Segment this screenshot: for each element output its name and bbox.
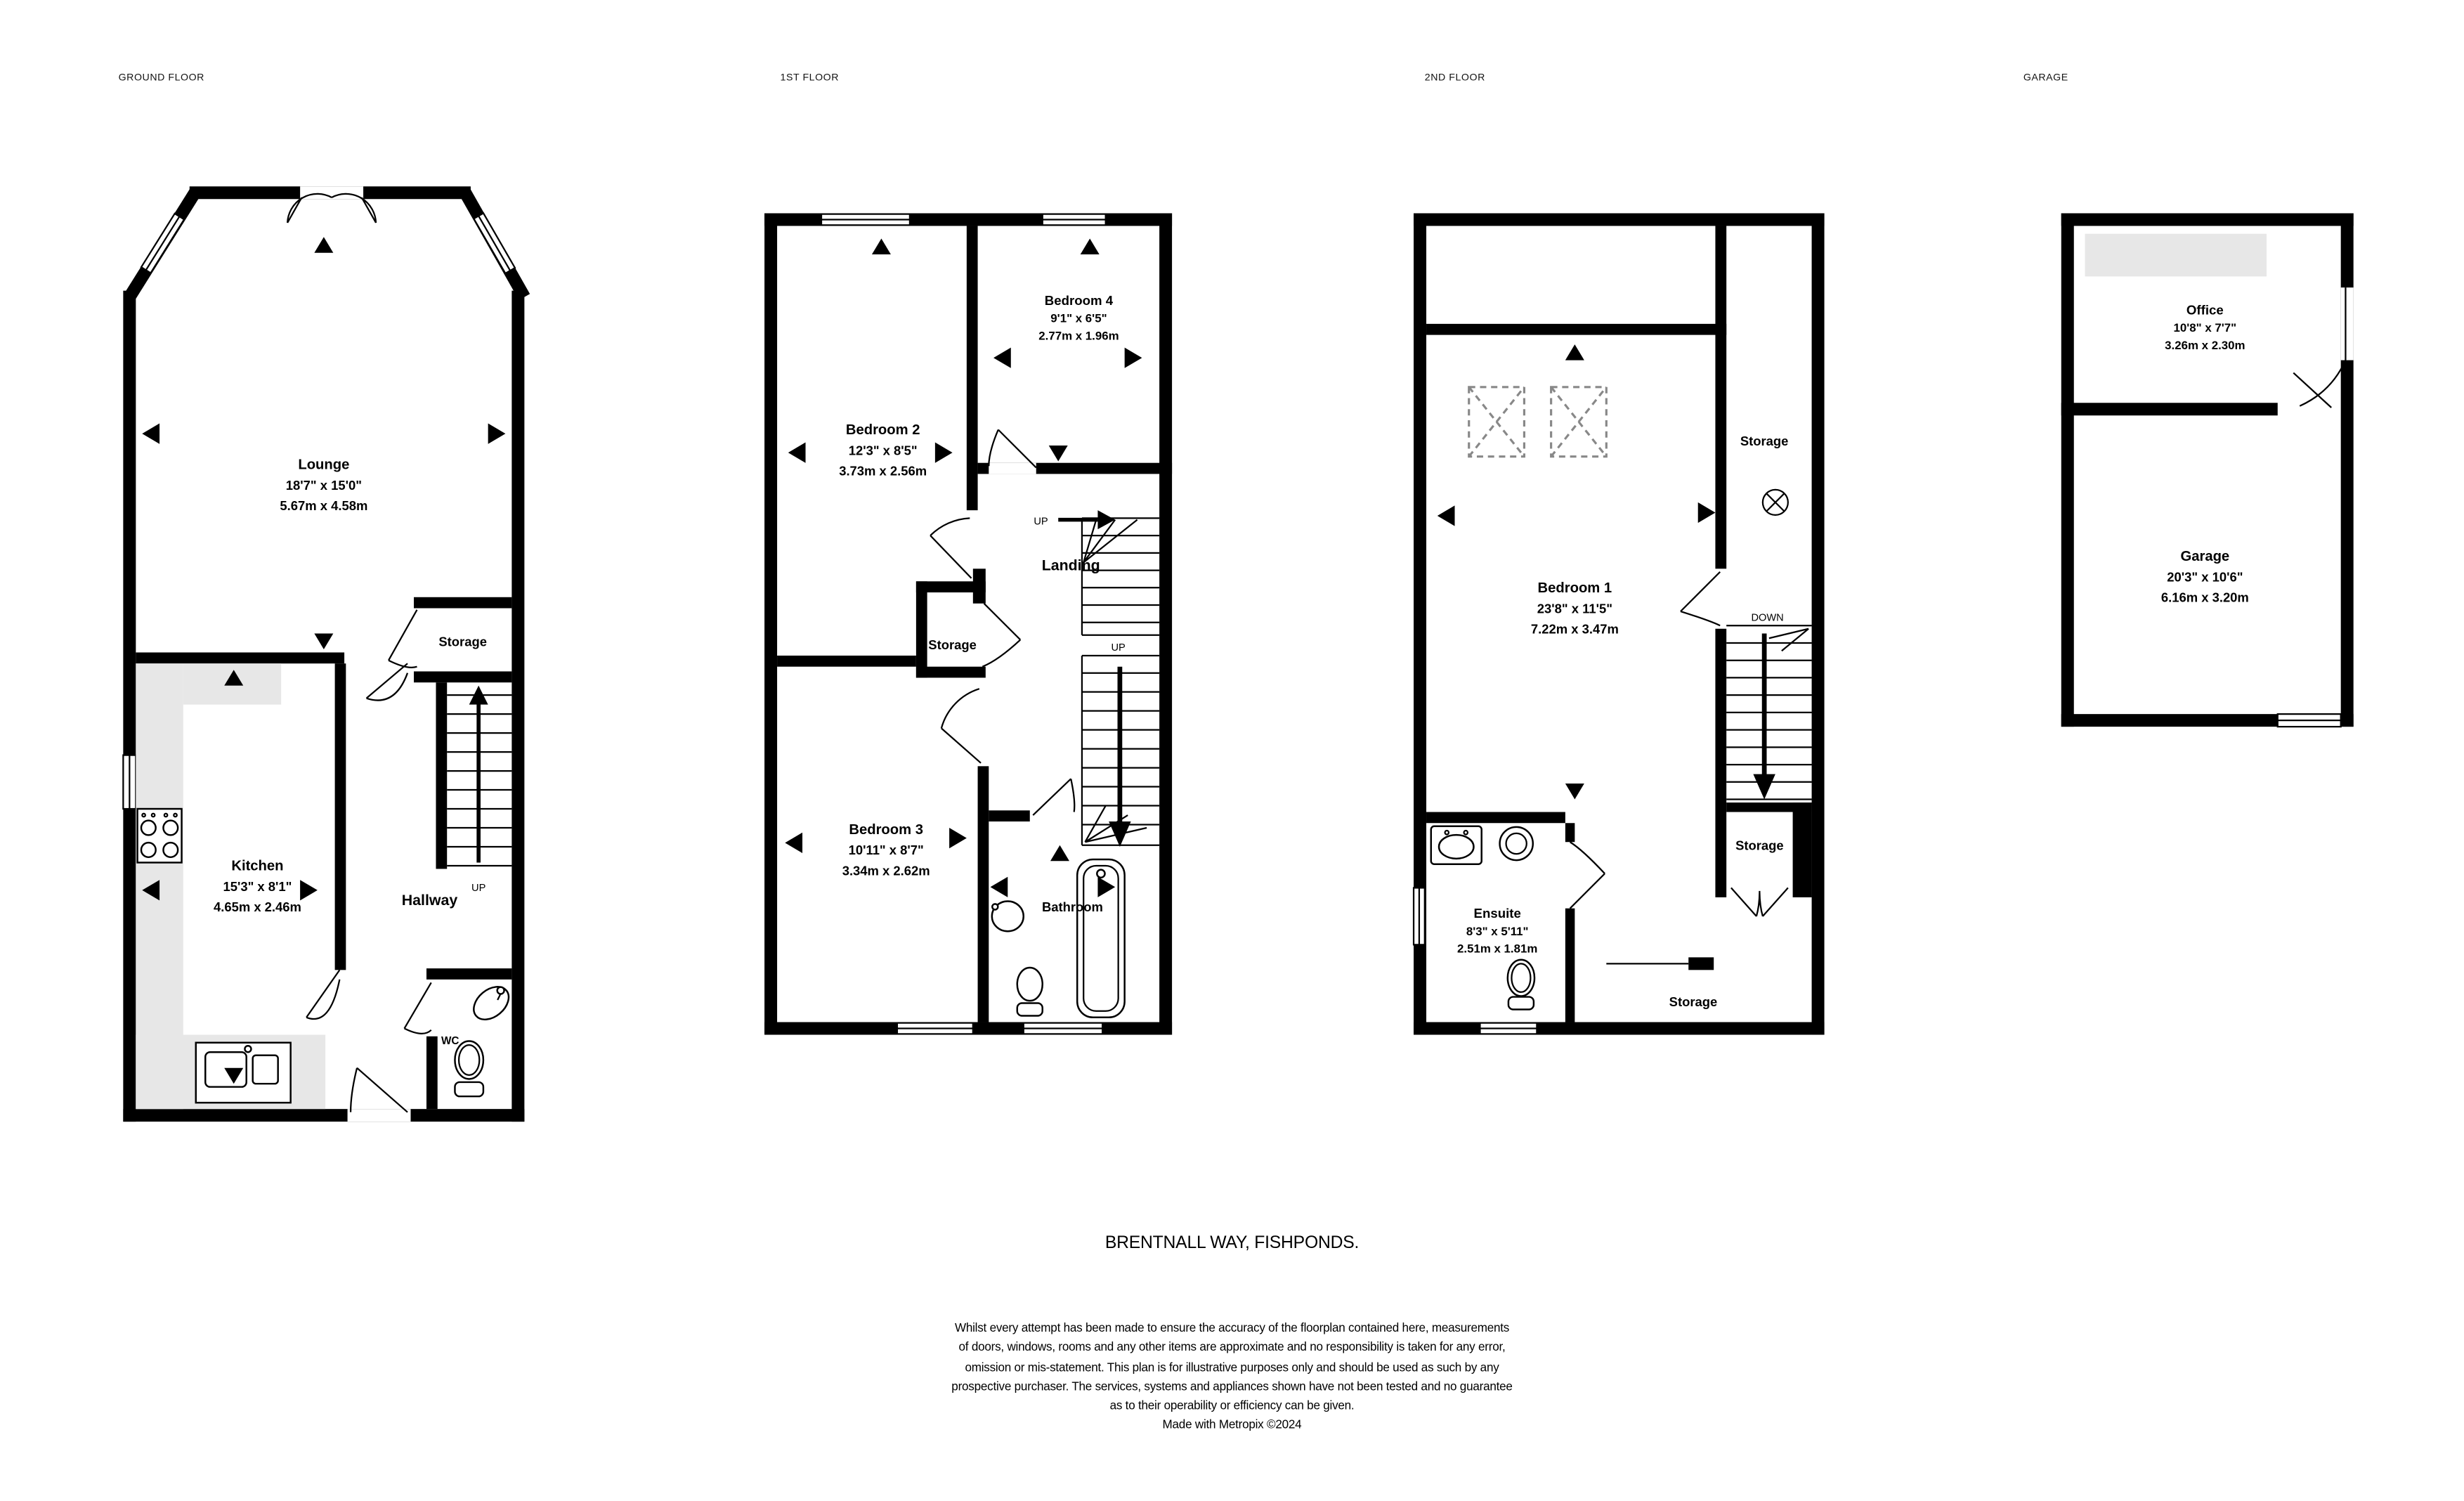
ground-floor-plan: Lounge 18'7" x 15'0" 5.67m x 4.58m Kitch…	[110, 171, 545, 1138]
ensuite-basin-icon	[1431, 826, 1482, 864]
svg-text:10'8" x 7'7": 10'8" x 7'7"	[2174, 321, 2237, 334]
landing-label: Landing	[1042, 557, 1100, 574]
ground-walls	[123, 186, 524, 1122]
second-floor-plan: Bedroom 1 23'8" x 11'5" 7.22m x 3.47m En…	[1406, 205, 1840, 1051]
down-label: DOWN	[1751, 613, 1783, 624]
arrow-up-icon	[872, 238, 891, 254]
svg-text:Kitchen: Kitchen	[231, 859, 283, 874]
arrow-right-icon	[935, 442, 953, 462]
svg-text:20'3" x 10'6": 20'3" x 10'6"	[2167, 569, 2243, 584]
bedroom1-label: Bedroom 1 23'8" x 11'5" 7.22m x 3.47m	[1531, 580, 1619, 636]
lounge-label: Lounge 18'7" x 15'0" 5.67m x 4.58m	[280, 457, 367, 513]
arrow-up-icon	[1081, 238, 1100, 254]
arrow-up-icon	[1050, 845, 1069, 861]
arrow-left-icon	[788, 442, 806, 462]
arrow-up-icon	[314, 237, 333, 252]
svg-text:3.26m x 2.30m: 3.26m x 2.30m	[2165, 339, 2245, 352]
arrow-left-icon	[142, 423, 159, 443]
arrow-right-icon	[1125, 348, 1142, 368]
office-label: Office 10'8" x 7'7" 3.26m x 2.30m	[2165, 302, 2245, 351]
arrow-left-icon	[993, 348, 1011, 368]
garage-title: GARAGE	[2023, 72, 2068, 84]
basin-icon	[992, 902, 1024, 932]
ground-up-label: UP	[471, 883, 485, 894]
svg-text:Office: Office	[2186, 302, 2224, 317]
arrow-right-icon	[1698, 502, 1716, 523]
ground-stairs-icon	[447, 686, 511, 866]
svg-text:Bedroom 2: Bedroom 2	[846, 422, 920, 438]
wc-label: WC	[441, 1035, 459, 1047]
garage-label: Garage 20'3" x 10'6" 6.16m x 3.20m	[2161, 549, 2249, 604]
arrow-right-icon	[488, 423, 506, 443]
svg-text:5.67m x 4.58m: 5.67m x 4.58m	[280, 498, 367, 513]
metropix-credit: Made with Metropix ©2024	[0, 1416, 2464, 1436]
second-stairs-icon	[1726, 625, 1811, 799]
hob-icon	[138, 809, 182, 862]
svg-text:Ensuite: Ensuite	[1474, 906, 1521, 921]
bedroom3-label: Bedroom 3 10'11" x 8'7" 3.34m x 2.62m	[842, 822, 930, 878]
svg-text:15'3" x 8'1": 15'3" x 8'1"	[223, 879, 292, 894]
disclaimer-line: omission or mis-statement. This plan is …	[0, 1358, 2464, 1377]
svg-text:7.22m x 3.47m: 7.22m x 3.47m	[1531, 621, 1619, 636]
second-storage-top-label: Storage	[1740, 434, 1789, 448]
svg-text:Garage: Garage	[2181, 549, 2230, 564]
arrow-left-icon	[785, 833, 802, 853]
disclaimer-line: prospective purchaser. The services, sys…	[0, 1377, 2464, 1397]
svg-text:2.51m x 1.81m: 2.51m x 1.81m	[1457, 942, 1537, 956]
disclaimer-line: as to their operability or efficiency ca…	[0, 1397, 2464, 1417]
ensuite-label: Ensuite 8'3" x 5'11" 2.51m x 1.81m	[1457, 906, 1537, 955]
first-floor-title: 1ST FLOOR	[781, 72, 839, 84]
window-icon	[1414, 888, 1425, 944]
garage-door-icon	[2278, 714, 2341, 727]
first-doors	[930, 429, 1074, 815]
bedroom4-label: Bedroom 4 9'1" x 6'5" 2.77m x 1.96m	[1038, 293, 1119, 342]
window-icon	[1024, 1023, 1102, 1034]
svg-text:Lounge: Lounge	[298, 457, 349, 473]
french-door-icon	[287, 186, 376, 223]
light-icon	[1763, 490, 1788, 515]
round-basin-icon	[1500, 827, 1533, 860]
window-icon	[1480, 1023, 1537, 1034]
disclaimer-text: Whilst every attempt has been made to en…	[0, 1319, 2464, 1436]
window-icon	[1043, 214, 1106, 226]
svg-text:2.77m x 1.96m: 2.77m x 1.96m	[1038, 329, 1119, 342]
garage-plan: Office 10'8" x 7'7" 3.26m x 2.30m Garage…	[2054, 205, 2370, 750]
svg-text:23'8" x 11'5": 23'8" x 11'5"	[1537, 601, 1612, 616]
ground-floor-title: GROUND FLOOR	[119, 72, 204, 84]
arrow-down-icon	[1049, 446, 1068, 461]
second-floor-title: 2ND FLOOR	[1425, 72, 1485, 84]
window-icon	[897, 1023, 973, 1034]
kitchen-label: Kitchen 15'3" x 8'1" 4.65m x 2.46m	[214, 859, 301, 914]
second-storage-mid-label: Storage	[1735, 838, 1784, 852]
second-storage-bottom-label: Storage	[1669, 994, 1718, 1009]
svg-text:Bedroom 3: Bedroom 3	[849, 822, 923, 838]
workbench	[2085, 234, 2267, 277]
disclaimer-line: of doors, windows, rooms and any other i…	[0, 1339, 2464, 1358]
arrow-down-icon	[1565, 784, 1584, 799]
sink-icon	[196, 1043, 291, 1103]
disclaimer-line: Whilst every attempt has been made to en…	[0, 1319, 2464, 1339]
floorplan-canvas: GROUND FLOOR 1ST FLOOR 2ND FLOOR GARAGE	[0, 0, 2464, 1501]
toilet-icon	[1017, 968, 1043, 1016]
window-icon	[821, 214, 910, 226]
toilet-icon	[1508, 960, 1534, 1010]
svg-text:6.16m x 3.20m: 6.16m x 3.20m	[2161, 590, 2249, 605]
window-icon	[123, 755, 136, 809]
hallway-label: Hallway	[402, 892, 458, 909]
bathroom-label: Bathroom	[1042, 899, 1103, 914]
svg-text:8'3" x 5'11": 8'3" x 5'11"	[1466, 925, 1529, 938]
first-up-label: UP	[1034, 516, 1048, 527]
first-up-label-2: UP	[1112, 642, 1126, 654]
svg-text:3.73m x 2.56m: 3.73m x 2.56m	[839, 464, 927, 479]
toilet-icon	[455, 1041, 483, 1096]
svg-text:Bedroom 4: Bedroom 4	[1045, 293, 1114, 308]
arrow-left-icon	[991, 877, 1008, 897]
second-dimension-arrows	[1438, 344, 1716, 799]
arrow-right-icon	[300, 880, 318, 900]
arrow-right-icon	[949, 828, 967, 848]
first-floor-plan: Bedroom 2 12'3" x 8'5" 3.73m x 2.56m Bed…	[758, 205, 1185, 1051]
arrow-down-icon	[314, 633, 333, 649]
svg-text:4.65m x 2.46m: 4.65m x 2.46m	[214, 899, 301, 914]
bedroom2-label: Bedroom 2 12'3" x 8'5" 3.73m x 2.56m	[839, 422, 927, 478]
svg-text:12'3" x 8'5": 12'3" x 8'5"	[849, 443, 918, 457]
arrow-up-icon	[1565, 344, 1584, 360]
svg-text:9'1" x 6'5": 9'1" x 6'5"	[1050, 312, 1107, 325]
velux-window-icon	[1469, 387, 1607, 457]
first-storage-label: Storage	[928, 637, 977, 652]
corner-basin-icon	[467, 980, 515, 1026]
window-icon	[474, 213, 515, 273]
svg-text:18'7" x 15'0": 18'7" x 15'0"	[286, 478, 362, 493]
svg-text:3.34m x 2.62m: 3.34m x 2.62m	[842, 863, 930, 878]
arrow-left-icon	[1438, 505, 1455, 526]
window-icon	[141, 214, 184, 273]
ground-storage-label: Storage	[438, 634, 487, 649]
svg-text:10'11" x 8'7": 10'11" x 8'7"	[849, 843, 924, 857]
first-stairs-lower-icon	[1082, 656, 1159, 847]
page-title: BRENTNALL WAY, FISHPONDS.	[0, 1234, 2464, 1253]
svg-text:Bedroom 1: Bedroom 1	[1538, 580, 1612, 596]
garage-walls	[2061, 213, 2354, 727]
